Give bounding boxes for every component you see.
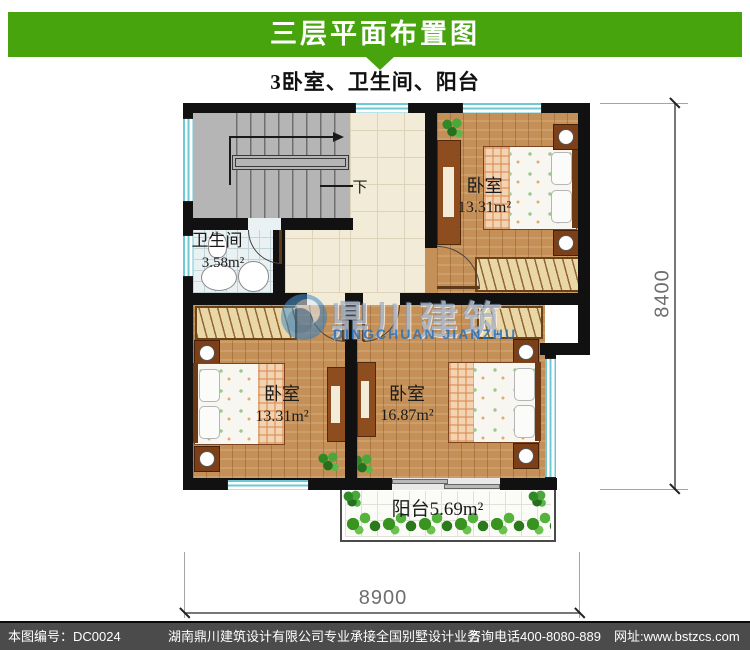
window-left-stairs [183,118,193,202]
bed-br [448,362,540,443]
bathroom-door-gap [248,218,281,230]
window-bottom-bedroom-bl [227,480,309,490]
bedroom-br-label: 卧室 [357,380,457,406]
nightstand [194,446,220,472]
dim-bottom-value: 8900 [343,587,423,610]
nightstand [553,230,579,256]
desk-bl-panel [331,386,340,423]
pillow [551,152,572,185]
page-subtitle: 3卧室、卫生间、阳台 [0,66,750,96]
plant-icon [528,490,546,508]
bed-br-headboard [535,362,541,441]
wall-hall-bedroom-tr [425,103,437,248]
wall-stairs-bottom-b [281,218,353,230]
watermark-logo-icon [281,294,327,340]
nightstand [513,443,539,469]
window-top-hall [355,103,409,113]
wall-right-step [540,343,590,355]
dim-bottom-ext-left [184,552,185,618]
watermark-en: DINGCHUAN JIANZHU [333,326,517,342]
pillow [514,368,535,401]
floor-plan-page: 三层平面布置图 3卧室、卫生间、阳台 [0,0,750,650]
window-top-bedroom-tr [462,103,542,113]
window-right-bedroom-br [545,358,556,478]
stairs-direction-arrow-icon [333,132,344,142]
plant-icon [440,116,464,140]
bathroom-label: 卫生间 [186,226,248,251]
bed-bl-headboard [193,363,198,443]
bedroom-tr-area: 13.31m² [437,199,532,217]
bedroom-tr-door-gap [425,248,437,293]
stairs-handrail [232,155,349,170]
hallway-floor [350,113,425,293]
footer-bar: 本图编号：DC0024 湖南鼎川建筑设计有限公司专业承接全国别墅设计业务 咨询电… [0,623,750,650]
bathroom-area: 3.58m² [192,255,254,272]
pillow [199,406,220,439]
bedroom-bl-area: 13.31m² [232,408,332,426]
wardrobe-tr [475,257,580,292]
hallway-floor-lower [285,230,350,293]
bedroom-bl-label: 卧室 [232,380,332,406]
stairs-down-label: 下 [350,176,370,197]
stairs-direction-line-v [229,137,231,185]
dim-bottom-line [185,612,580,614]
nightstand [553,124,579,150]
down-leader-line [320,185,353,187]
footer-phone: 咨询电话400-8080-889 [468,623,601,650]
plant-icon [316,450,340,474]
sliding-door-panel-2 [444,484,500,489]
footer-drawing-number: 本图编号：DC0024 [8,623,121,650]
balcony-label: 阳台5.69m² [345,494,530,521]
footer-website: 网址:www.bstzcs.com [614,623,740,650]
pillow [551,190,572,223]
bedroom-br-area: 16.87m² [357,407,457,425]
sliding-door-panel-1 [392,479,448,484]
page-title: 三层平面布置图 [8,12,742,57]
footer-company: 湖南鼎川建筑设计有限公司专业承接全国别墅设计业务 [168,623,480,650]
stairs-direction-line-h [229,136,335,138]
wall-right-upper [578,103,590,355]
pillow [199,369,220,402]
dim-bottom-ext-right [579,552,580,618]
pillow [514,405,535,438]
dim-right-value: 8400 [652,267,675,321]
bathroom-door-leaf [279,230,282,263]
bedroom-tr-label: 卧室 [437,172,532,198]
